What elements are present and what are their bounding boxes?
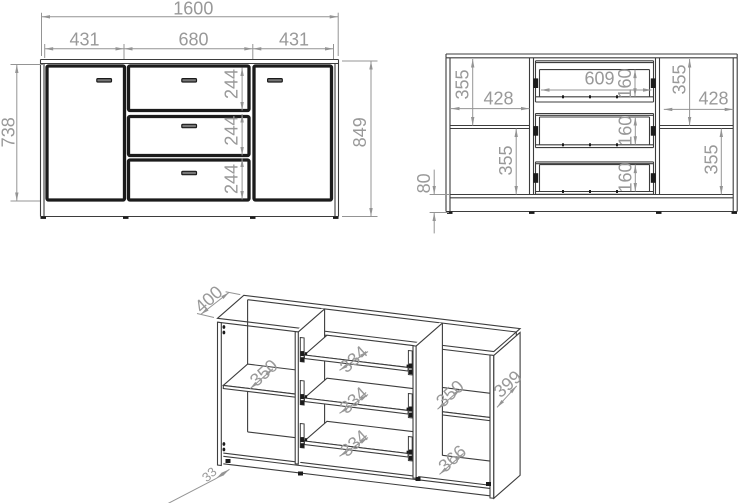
svg-text:355: 355 (496, 145, 516, 175)
svg-text:80: 80 (414, 173, 434, 193)
svg-text:431: 431 (279, 30, 309, 50)
svg-text:244: 244 (222, 116, 242, 146)
svg-text:244: 244 (222, 164, 242, 194)
svg-text:160: 160 (615, 116, 635, 146)
svg-text:431: 431 (69, 30, 99, 50)
svg-text:738: 738 (0, 117, 18, 147)
svg-text:849: 849 (350, 117, 370, 147)
svg-text:355: 355 (670, 64, 690, 94)
svg-text:33: 33 (199, 464, 220, 485)
svg-text:680: 680 (178, 30, 208, 50)
svg-text:244: 244 (222, 69, 242, 99)
svg-text:428: 428 (483, 88, 513, 108)
svg-text:609: 609 (584, 69, 614, 89)
svg-text:428: 428 (698, 89, 728, 109)
svg-text:355: 355 (453, 69, 473, 99)
svg-text:160: 160 (615, 68, 635, 98)
svg-text:355: 355 (702, 144, 722, 174)
svg-text:1600: 1600 (173, 0, 213, 18)
svg-text:160: 160 (615, 162, 635, 192)
svg-text:400: 400 (191, 282, 227, 317)
